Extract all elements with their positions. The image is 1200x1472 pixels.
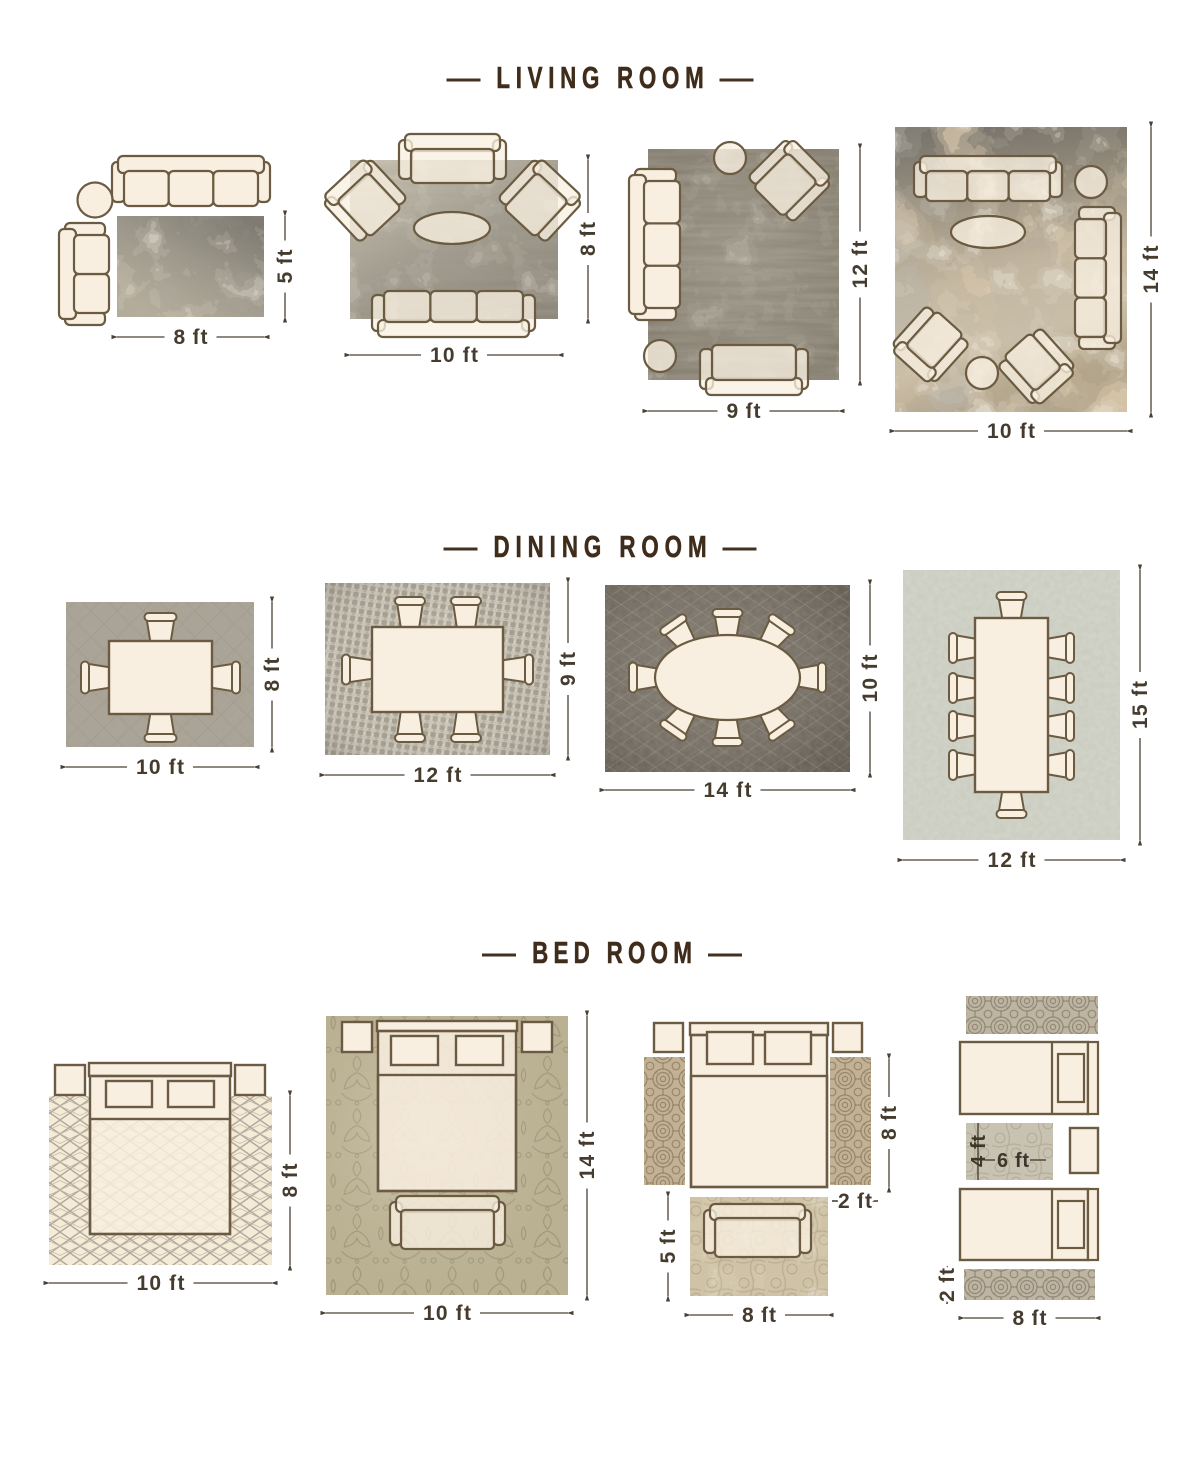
svg-text:BED ROOM: BED ROOM	[532, 935, 692, 969]
svg-text:10 ft: 10 ft	[136, 756, 184, 779]
svg-text:8 ft: 8 ft	[279, 1164, 302, 1198]
svg-text:10 ft: 10 ft	[430, 344, 478, 367]
svg-text:5 ft: 5 ft	[274, 250, 297, 284]
svg-text:9 ft: 9 ft	[557, 652, 580, 686]
svg-text:2 ft: 2 ft	[838, 1190, 872, 1213]
svg-text:15 ft: 15 ft	[1129, 681, 1152, 729]
svg-text:8 ft: 8 ft	[878, 1106, 901, 1140]
svg-text:14 ft: 14 ft	[1140, 246, 1163, 294]
svg-text:10 ft: 10 ft	[423, 1302, 471, 1325]
svg-text:10 ft: 10 ft	[987, 420, 1035, 443]
svg-text:8 ft: 8 ft	[577, 222, 600, 256]
svg-text:10 ft: 10 ft	[137, 1272, 185, 1295]
svg-text:12 ft: 12 ft	[849, 241, 872, 289]
svg-text:9 ft: 9 ft	[727, 400, 761, 423]
svg-text:8 ft: 8 ft	[261, 658, 284, 692]
svg-text:14 ft: 14 ft	[704, 779, 752, 802]
svg-text:2 ft: 2 ft	[936, 1268, 959, 1302]
svg-text:8 ft: 8 ft	[1013, 1307, 1047, 1330]
svg-text:14 ft: 14 ft	[576, 1132, 599, 1180]
svg-text:5 ft: 5 ft	[657, 1230, 680, 1264]
svg-text:6 ft: 6 ft	[997, 1150, 1029, 1172]
svg-text:12 ft: 12 ft	[988, 849, 1036, 872]
svg-text:10 ft: 10 ft	[859, 655, 882, 703]
svg-text:4 ft: 4 ft	[968, 1135, 990, 1167]
svg-text:12 ft: 12 ft	[414, 764, 462, 787]
svg-text:8 ft: 8 ft	[174, 326, 208, 349]
svg-text:8 ft: 8 ft	[742, 1304, 776, 1327]
